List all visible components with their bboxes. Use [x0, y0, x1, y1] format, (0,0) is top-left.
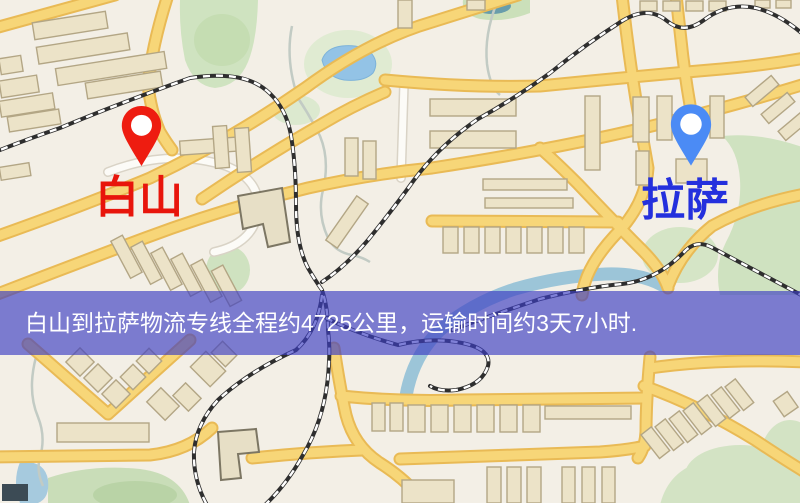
destination-city-label: 拉萨	[641, 179, 729, 223]
map-canvas	[0, 0, 800, 503]
destination-pin-icon	[668, 100, 714, 175]
route-info-banner: 白山到拉萨物流专线全程约4725公里，运输时间约3天7小时.	[0, 291, 800, 355]
origin-pin-icon	[119, 102, 164, 175]
logistics-route-map: 白山 拉萨 白山到拉萨物流专线全程约4725公里，运输时间约3天7小时.	[0, 0, 800, 503]
route-banner-text: 白山到拉萨物流专线全程约4725公里，运输时间约3天7小时.	[0, 291, 800, 355]
origin-city-label: 白山	[95, 176, 183, 220]
